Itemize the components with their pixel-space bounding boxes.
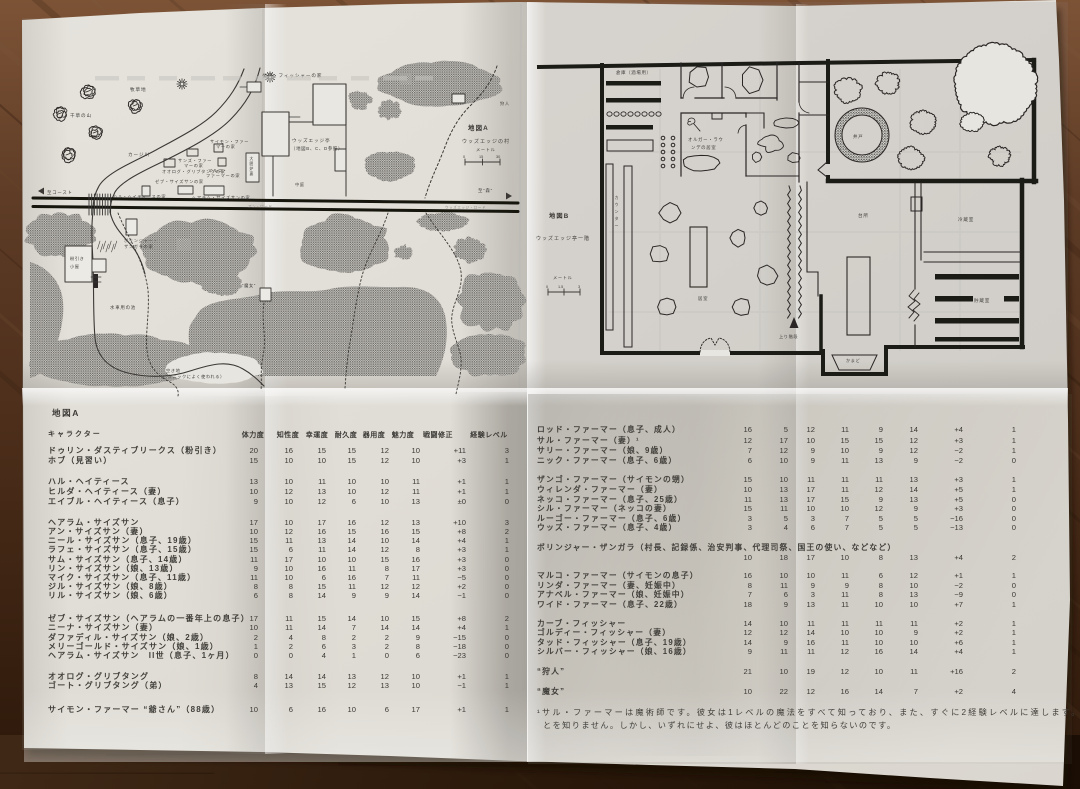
svg-text:粉引き: 粉引き (70, 255, 84, 262)
svg-text:とを知りません。しかし、いずれにせよ、彼はほとんどのことを知: とを知りません。しかし、いずれにせよ、彼はほとんどのことを知らないのです。 (543, 720, 896, 730)
svg-text:ワイド・ファーマー（息子、22歳）: ワイド・ファーマー（息子、22歳） (537, 599, 683, 609)
svg-text:貯蔵室: 貯蔵室 (974, 297, 990, 304)
svg-text:メートル: メートル (553, 275, 573, 280)
svg-text:¹サル・ファーマーは魔術師です。彼女は1レベルの魔法をすべて: ¹サル・ファーマーは魔術師です。彼女は1レベルの魔法をすべて知っており、また、す… (537, 707, 1080, 717)
svg-text:アン・サイズサン（妻）: アン・サイズサン（妻） (48, 526, 149, 536)
svg-text:サイモン・ファーマー “爺さん”（88歳）: サイモン・ファーマー “爺さん”（88歳） (48, 704, 220, 714)
svg-text:ヘアラム・サイズサン: ヘアラム・サイズサン (48, 517, 140, 527)
svg-text:ハル・ヘイティースの家: ハル・ヘイティースの家 (113, 193, 166, 200)
svg-text:オルガー・ラウ: オルガー・ラウ (688, 136, 724, 143)
svg-text:30: 30 (496, 155, 500, 159)
svg-text:マーの家: マーの家 (184, 162, 204, 169)
svg-text:ンデの居室: ンデの居室 (691, 144, 716, 151)
svg-text:ウッズ・ファーマー（息子、4歳）: ウッズ・ファーマー（息子、4歳） (537, 522, 678, 532)
svg-text:経験レベル: 経験レベル (470, 430, 508, 439)
svg-text:ネッコ・ファーマー（息子、25歳）: ネッコ・ファーマー（息子、25歳） (537, 494, 683, 504)
svg-text:カ: カ (615, 195, 619, 200)
svg-text:アン・ロード: アン・ロード (248, 204, 272, 209)
svg-text:倉庫（酒場用）: 倉庫（酒場用） (616, 69, 652, 76)
svg-text:ウッズエッジ・ロード: ウッズエッジ・ロード (445, 205, 486, 210)
svg-text:地図A: 地図A (52, 408, 80, 418)
svg-text:リン・サイズサン（娘、13歳）: リン・サイズサン（娘、13歳） (48, 563, 179, 573)
svg-text:15: 15 (479, 155, 483, 159)
svg-text:ロッド・ファーマー（息子、成人）: ロッド・ファーマー（息子、成人） (537, 424, 681, 434)
svg-text:狩人: 狩人 (500, 100, 510, 107)
svg-text:井戸: 井戸 (853, 133, 863, 140)
svg-text:ジル・サイズサン（娘、8歳）: ジル・サイズサン（娘、8歳） (48, 581, 173, 591)
svg-text:“魔女”: “魔女” (537, 686, 565, 696)
svg-text:3: 3 (578, 285, 580, 289)
svg-text:“狩人”: “狩人” (537, 666, 565, 676)
svg-text:アナベル・ファーマー（娘、妊娠中）: アナベル・ファーマー（娘、妊娠中） (537, 589, 690, 599)
svg-text:ザンガラの家: ザンガラの家 (124, 243, 153, 250)
svg-text:ヒルダ・ヘイティース（妻）: ヒルダ・ヘイティース（妻） (48, 486, 167, 496)
svg-text:耐久度: 耐久度 (335, 430, 358, 439)
svg-text:上り階段: 上り階段 (779, 333, 798, 340)
svg-text:（地図B、C、D参照）: （地図B、C、D参照） (291, 145, 343, 152)
svg-text:サリー・ファーマー（娘、9歳）: サリー・ファーマー（娘、9歳） (537, 445, 669, 455)
svg-text:戦闘修正: 戦闘修正 (423, 430, 453, 439)
svg-text:ン: ン (615, 209, 619, 214)
svg-text:裏: 裏 (250, 171, 254, 176)
svg-text:ヘアラム・サイズサン II世（息子、1ヶ月）: ヘアラム・サイズサン II世（息子、1ヶ月） (48, 650, 235, 660)
svg-text:ハル・ヘイティース: ハル・ヘイティース (48, 477, 130, 486)
svg-text:カーブ・フィッシャー: カーブ・フィッシャー (537, 618, 626, 628)
svg-text:オオログ・グリブタングの家: オオログ・グリブタングの家 (162, 168, 226, 175)
svg-text:ゴート・グリブタング（弟）: ゴート・グリブタング（弟） (48, 680, 168, 690)
svg-text:メートル: メートル (476, 147, 496, 152)
svg-text:ウッズエッジ亭一階: ウッズエッジ亭一階 (536, 235, 590, 242)
svg-text:ニール・サイズサン（息子、19歳）: ニール・サイズサン（息子、19歳） (48, 535, 197, 545)
svg-text:ゼブ・サイズサンの家: ゼブ・サイズサンの家 (155, 178, 204, 185)
svg-text:マイク・サイズサン（息子、11歳）: マイク・サイズサン（息子、11歳） (48, 572, 196, 582)
svg-text:大: 大 (250, 156, 254, 161)
svg-text:水車用の池: 水車用の池 (110, 304, 136, 311)
svg-text:幸運度: 幸運度 (306, 430, 329, 439)
svg-text:リル・サイズサン（娘、6歳）: リル・サイズサン（娘、6歳） (48, 590, 173, 600)
svg-text:知性度: 知性度 (276, 430, 300, 439)
svg-text:空き地: 空き地 (166, 367, 181, 373)
svg-text:牧草地: 牧草地 (130, 86, 146, 93)
svg-text:リンダ・ファーマー（妻、妊娠中）: リンダ・ファーマー（妻、妊娠中） (537, 580, 681, 590)
svg-text:ニック・ファーマー（息子、6歳）: ニック・ファーマー（息子、6歳） (537, 455, 677, 465)
svg-text:サル・ファーマー（妻）¹: サル・ファーマー（妻）¹ (537, 435, 640, 445)
svg-text:囲: 囲 (250, 161, 254, 166)
svg-text:タッド・フィッシャー（息子、19歳）: タッド・フィッシャー（息子、19歳） (537, 637, 692, 647)
svg-text:器用度: 器用度 (362, 430, 386, 439)
svg-text:ドゥリン・ダスティブリークス（粉引き）: ドゥリン・ダスティブリークス（粉引き） (48, 445, 222, 455)
svg-text:地図B: 地図B (549, 212, 569, 220)
svg-text:中庭: 中庭 (295, 181, 305, 188)
svg-text:至“森”: 至“森” (478, 187, 493, 194)
svg-text:魅力度: 魅力度 (392, 430, 415, 439)
svg-text:マーの家: マーの家 (216, 143, 236, 150)
svg-text:ウッズエッジの村: ウッズエッジの村 (462, 138, 510, 145)
svg-text:ルーゴー・ファーマー（息子、6歳）: ルーゴー・ファーマー（息子、6歳） (537, 513, 687, 523)
svg-text:至コースト: 至コースト (47, 190, 73, 195)
svg-text:シルバー・フィッシャー（娘、16歳）: シルバー・フィッシャー（娘、16歳） (537, 646, 692, 656)
svg-text:ウィレンダ・ファーマー（妻）: ウィレンダ・ファーマー（妻） (537, 484, 663, 494)
svg-text:“魔女”: “魔女” (242, 282, 256, 289)
svg-text:小屋: 小屋 (70, 263, 80, 270)
svg-text:体力度: 体力度 (242, 430, 265, 439)
svg-text:居室: 居室 (698, 295, 708, 302)
svg-text:シル・ファーマー（ネッコの妻）: シル・ファーマー（ネッコの妻） (537, 503, 672, 513)
svg-text:かまど: かまど (846, 357, 861, 364)
svg-text:マルコ・ファーマー（サイモンの息子）: マルコ・ファーマー（サイモンの息子） (537, 570, 699, 580)
svg-text:サム・サイズサン（息子、14歳）: サム・サイズサン（息子、14歳） (48, 554, 188, 564)
svg-text:（ピクニックによく使われる）: （ピクニックによく使われる） (158, 373, 225, 380)
svg-text:炉: 炉 (250, 166, 254, 171)
svg-text:ザンゴ・ファーマー（サイモンの甥）: ザンゴ・ファーマー（サイモンの甥） (537, 474, 690, 484)
svg-text:キャラクター: キャラクター (48, 429, 102, 438)
svg-text:ー: ー (615, 223, 619, 228)
svg-text:ボリンジャー・: ボリンジャー・ (124, 237, 158, 243)
svg-text:ラフェ・サイズサン（息子、15歳）: ラフェ・サイズサン（息子、15歳） (48, 544, 197, 554)
svg-text:干草の山: 干草の山 (70, 112, 92, 119)
svg-text:ヘアラム・サイズサンの家: ヘアラム・サイズサンの家 (192, 194, 251, 201)
svg-text:ホブ（見習い）: ホブ（見習い） (48, 455, 112, 465)
svg-text:オオログ・グリブタング: オオログ・グリブタング (48, 671, 149, 681)
svg-text:ゼブ・サイズサン（ヘアラムの一番年上の息子）: ゼブ・サイズサン（ヘアラムの一番年上の息子） (48, 613, 250, 623)
svg-text:ボリンジャー・ザンガラ（村長、記録係、治安判事、代理司祭、国: ボリンジャー・ザンガラ（村長、記録係、治安判事、代理司祭、国王の使い、などなど） (537, 542, 896, 552)
svg-text:ダファディル・サイズサン（娘、2歳）: ダファディル・サイズサン（娘、2歳） (48, 632, 209, 642)
svg-text:台所: 台所 (858, 212, 869, 219)
svg-text:ニーナ・サイズサン（妻）: ニーナ・サイズサン（妻） (48, 622, 158, 632)
svg-text:ゴルディー・フィッシャー（妻）: ゴルディー・フィッシャー（妻） (537, 627, 671, 637)
svg-text:冷蔵室: 冷蔵室 (958, 216, 974, 223)
svg-text:エイブル・ヘイティース（息子）: エイブル・ヘイティース（息子） (48, 496, 185, 506)
svg-text:メリーゴールド・サイズサン（娘、1歳）: メリーゴールド・サイズサン（娘、1歳） (48, 641, 219, 651)
svg-text:0: 0 (546, 285, 548, 289)
svg-text:ウ: ウ (615, 201, 619, 207)
svg-text:ウッズエッジ亭: ウッズエッジ亭 (292, 137, 330, 144)
svg-text:地図A: 地図A (468, 123, 489, 132)
svg-text:1.5: 1.5 (558, 285, 563, 289)
svg-text:0: 0 (463, 155, 465, 159)
svg-text:タ: タ (615, 215, 619, 221)
